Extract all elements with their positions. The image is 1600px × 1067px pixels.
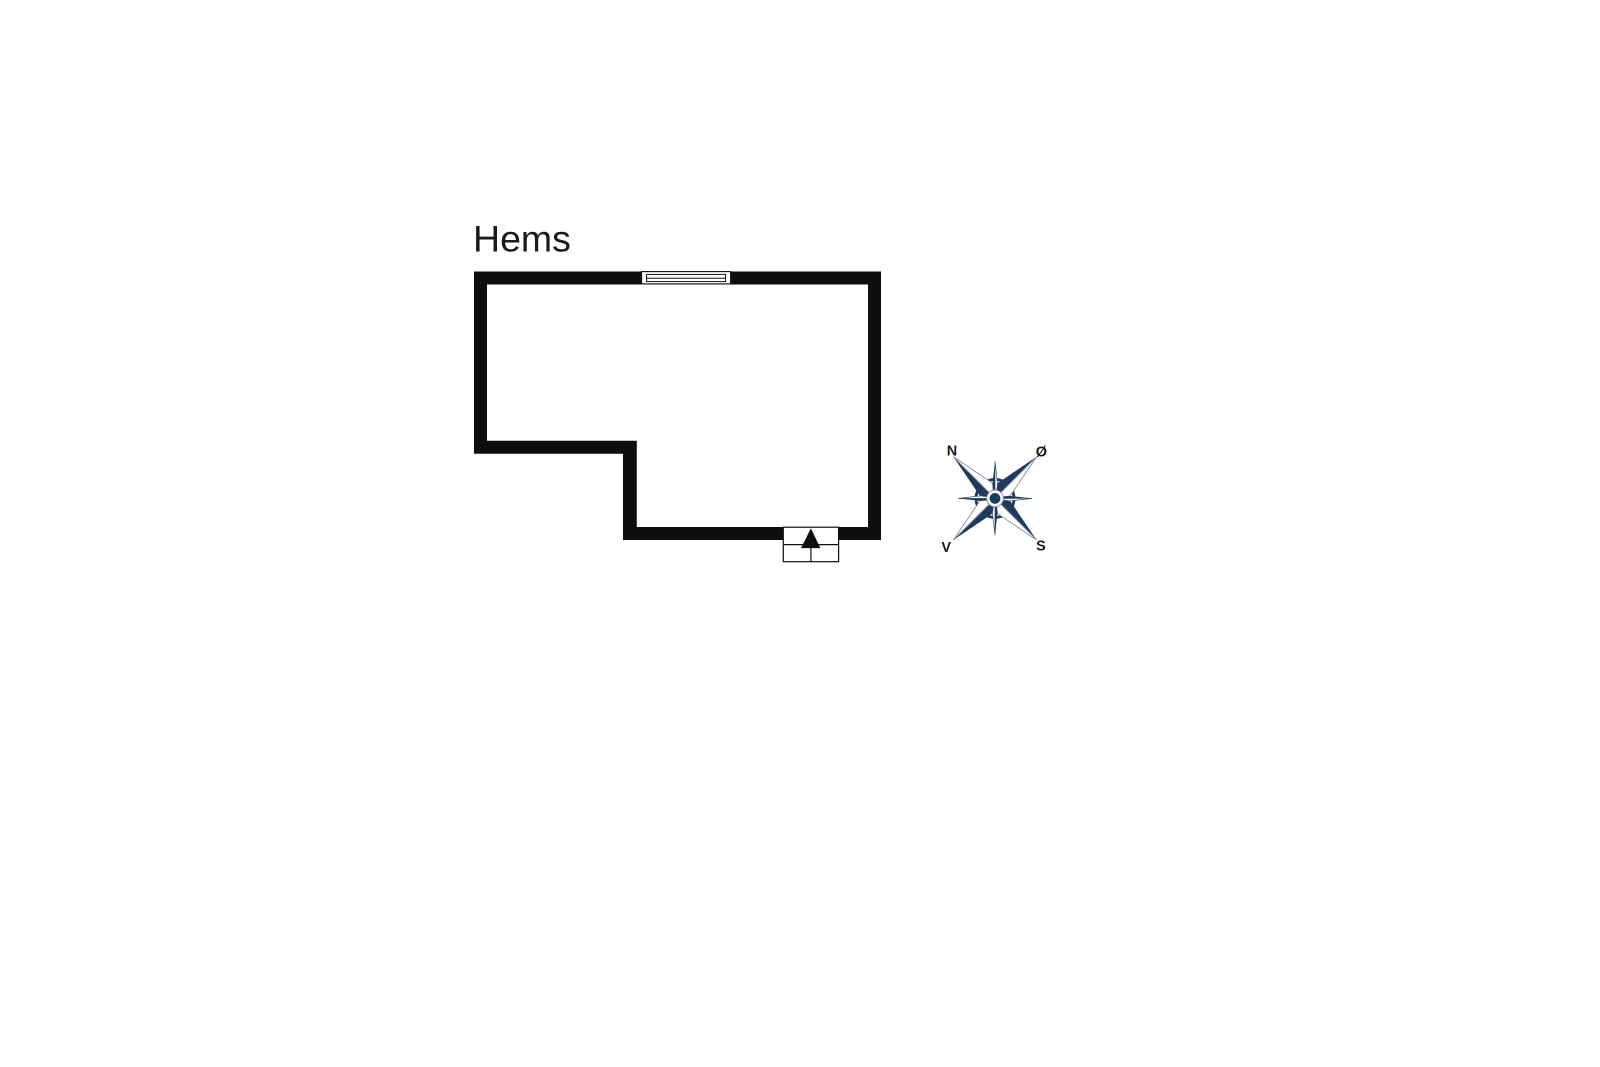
svg-text:V: V bbox=[941, 540, 951, 556]
svg-text:S: S bbox=[1036, 539, 1046, 555]
svg-text:N: N bbox=[947, 444, 957, 460]
svg-text:Hems: Hems bbox=[473, 218, 571, 260]
svg-text:Ø: Ø bbox=[1036, 445, 1047, 461]
